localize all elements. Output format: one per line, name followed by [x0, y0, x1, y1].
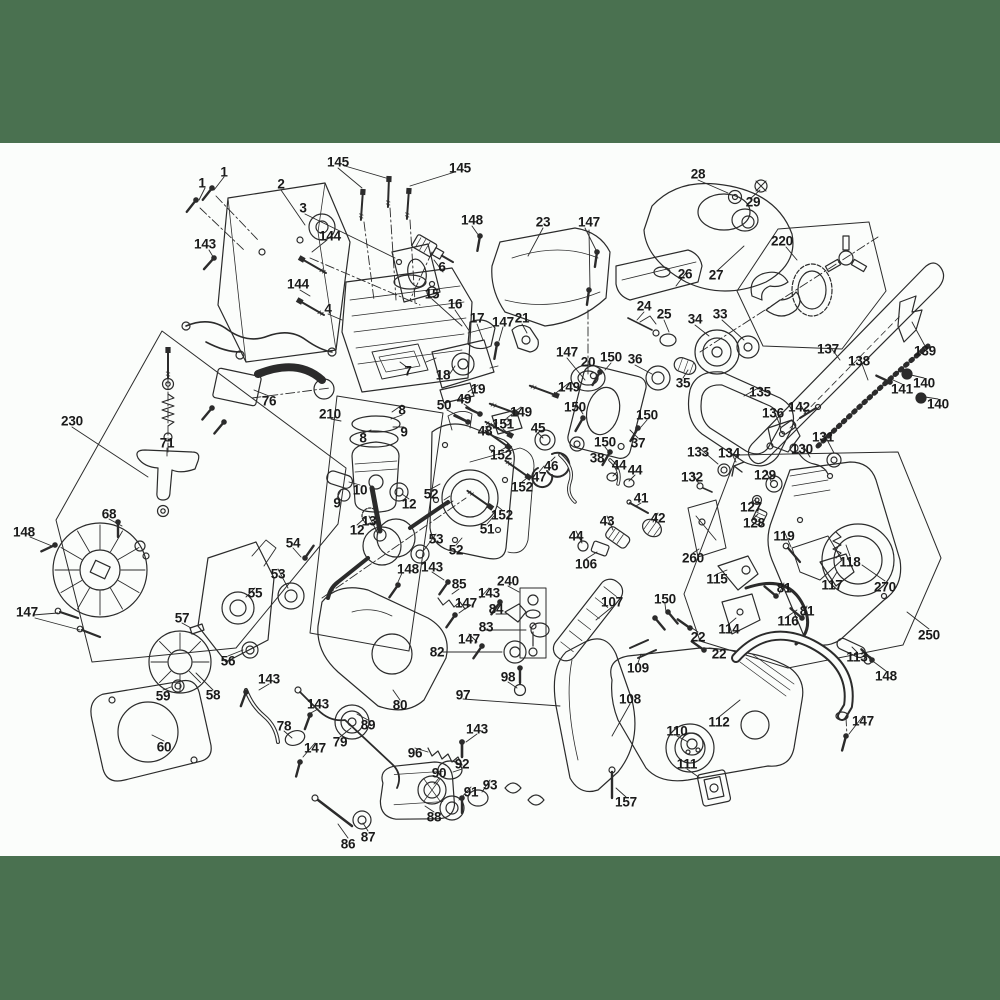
callout-leader-line	[432, 572, 444, 580]
crankcase-sketch	[430, 411, 534, 558]
callout-leader-line	[293, 548, 301, 557]
callout-leader-line	[698, 447, 718, 464]
callout-leader-line	[214, 177, 224, 190]
callout-leader-line	[692, 628, 698, 632]
felling-spike-sketch	[898, 296, 922, 342]
callout-leader-line	[799, 402, 806, 414]
callout-leader-line	[469, 634, 477, 642]
callout-leader-line	[551, 457, 555, 461]
callout-leader-line	[300, 290, 310, 296]
handle-molding-sketch	[318, 588, 447, 710]
callout-leader-line	[522, 478, 527, 482]
callout-leader-line	[453, 769, 462, 772]
rear-block-sketch	[768, 462, 901, 645]
callout-leader-line	[477, 324, 483, 340]
callout-leader-line	[452, 589, 459, 594]
callout-leader-line	[303, 743, 315, 757]
callout-leader-line	[425, 806, 434, 812]
callout-leader-line	[410, 172, 455, 186]
callout-leader-line	[698, 180, 728, 193]
top-cover-sketch	[644, 183, 793, 291]
callout-leader-line	[400, 362, 408, 368]
callout-leader-line	[508, 586, 519, 592]
callout-leader-line	[893, 380, 902, 384]
callout-leader-line	[415, 748, 428, 752]
air-filter-sketch	[616, 250, 702, 300]
callout-leader-line	[907, 612, 929, 629]
callout-leader-line	[616, 788, 626, 797]
callout-leader-line	[849, 716, 863, 734]
guide-bar-sketch	[748, 263, 943, 464]
exploded-diagram-art	[0, 0, 1000, 1000]
ignition-coil-sketch	[212, 367, 334, 406]
callout-leader-line	[228, 650, 243, 656]
callout-leader-line	[925, 397, 938, 399]
callout-leader-line	[393, 690, 400, 700]
carburetor-sketch	[426, 320, 538, 403]
callout-leader-line	[784, 531, 791, 547]
callout-leader-line	[912, 322, 925, 346]
rear-handle-sketch	[554, 639, 635, 792]
callout-leader-line	[911, 375, 924, 378]
parts-diagram-page: 1123143144144145145148231476154716171472…	[0, 0, 1000, 1000]
callout-leader-line	[499, 327, 503, 341]
callout-leader-line	[338, 168, 362, 188]
callout-leader-line	[539, 466, 544, 472]
callout-leader-line	[480, 588, 489, 598]
callout-leader-line	[676, 270, 688, 286]
spark-plug-sketch	[411, 234, 456, 268]
callout-leader-line	[398, 573, 402, 582]
starter-pulley-sketch	[53, 523, 147, 617]
callout-leader-line	[463, 699, 560, 706]
callout-leader-line	[802, 444, 810, 457]
assembly-axis-line	[200, 208, 244, 250]
callout-leader-line	[852, 647, 857, 652]
group-250-outline	[684, 452, 941, 668]
callout-leader-line	[497, 506, 502, 510]
callout-leader-line	[182, 623, 191, 628]
starter-housing-sketch	[88, 678, 214, 783]
callout-leader-line	[152, 735, 164, 741]
callout-leader-line	[455, 310, 470, 332]
callout-leader-line	[331, 419, 341, 421]
group-230-outline	[56, 331, 346, 662]
callout-leader-line	[641, 420, 647, 427]
callout-leader-line	[349, 482, 360, 485]
chain-sketch	[818, 346, 928, 446]
handle-tube-sketch	[736, 636, 849, 716]
callout-leader-line	[338, 824, 348, 838]
piston-crank-sketch	[325, 416, 453, 598]
oil-pump-housing-sketch	[198, 540, 276, 662]
callout-leader-line	[664, 320, 669, 332]
callout-leader-line	[254, 390, 269, 396]
callout-leader-line	[874, 662, 886, 671]
assembly-axis-line	[364, 222, 374, 300]
callout-leader-line	[30, 537, 52, 546]
callout-leader-line	[729, 618, 736, 624]
flywheel-sketch	[149, 631, 211, 693]
wing-nut-sketch	[755, 180, 767, 192]
callout-leader-line	[281, 190, 305, 225]
callout-leader-line	[828, 344, 840, 360]
cylinder-base-gasket-sketch	[372, 344, 428, 379]
callout-leader-line	[466, 734, 477, 742]
callout-leader-line	[482, 780, 490, 792]
callout-leader-line	[719, 700, 740, 717]
callout-leader-line	[718, 246, 744, 270]
callout-leader-line	[33, 613, 58, 615]
callout-leader-line	[345, 166, 386, 178]
callout-leader-line	[695, 325, 709, 336]
callout-leader-line	[636, 503, 641, 506]
callout-leader-line	[692, 472, 699, 484]
fuel-cap-sketch	[418, 776, 446, 804]
clutch-sketch	[751, 236, 866, 316]
callout-leader-line	[72, 427, 148, 477]
bottom-crankcase-sketch	[611, 648, 803, 781]
callout-leader-line	[259, 684, 269, 690]
callout-leader-line	[357, 517, 366, 525]
callout-leader-line	[637, 312, 644, 320]
cylinder-sketch	[342, 268, 472, 392]
callout-leader-line	[832, 572, 837, 580]
assembly-axis-line	[216, 196, 258, 240]
callout-leader-line	[35, 618, 80, 630]
